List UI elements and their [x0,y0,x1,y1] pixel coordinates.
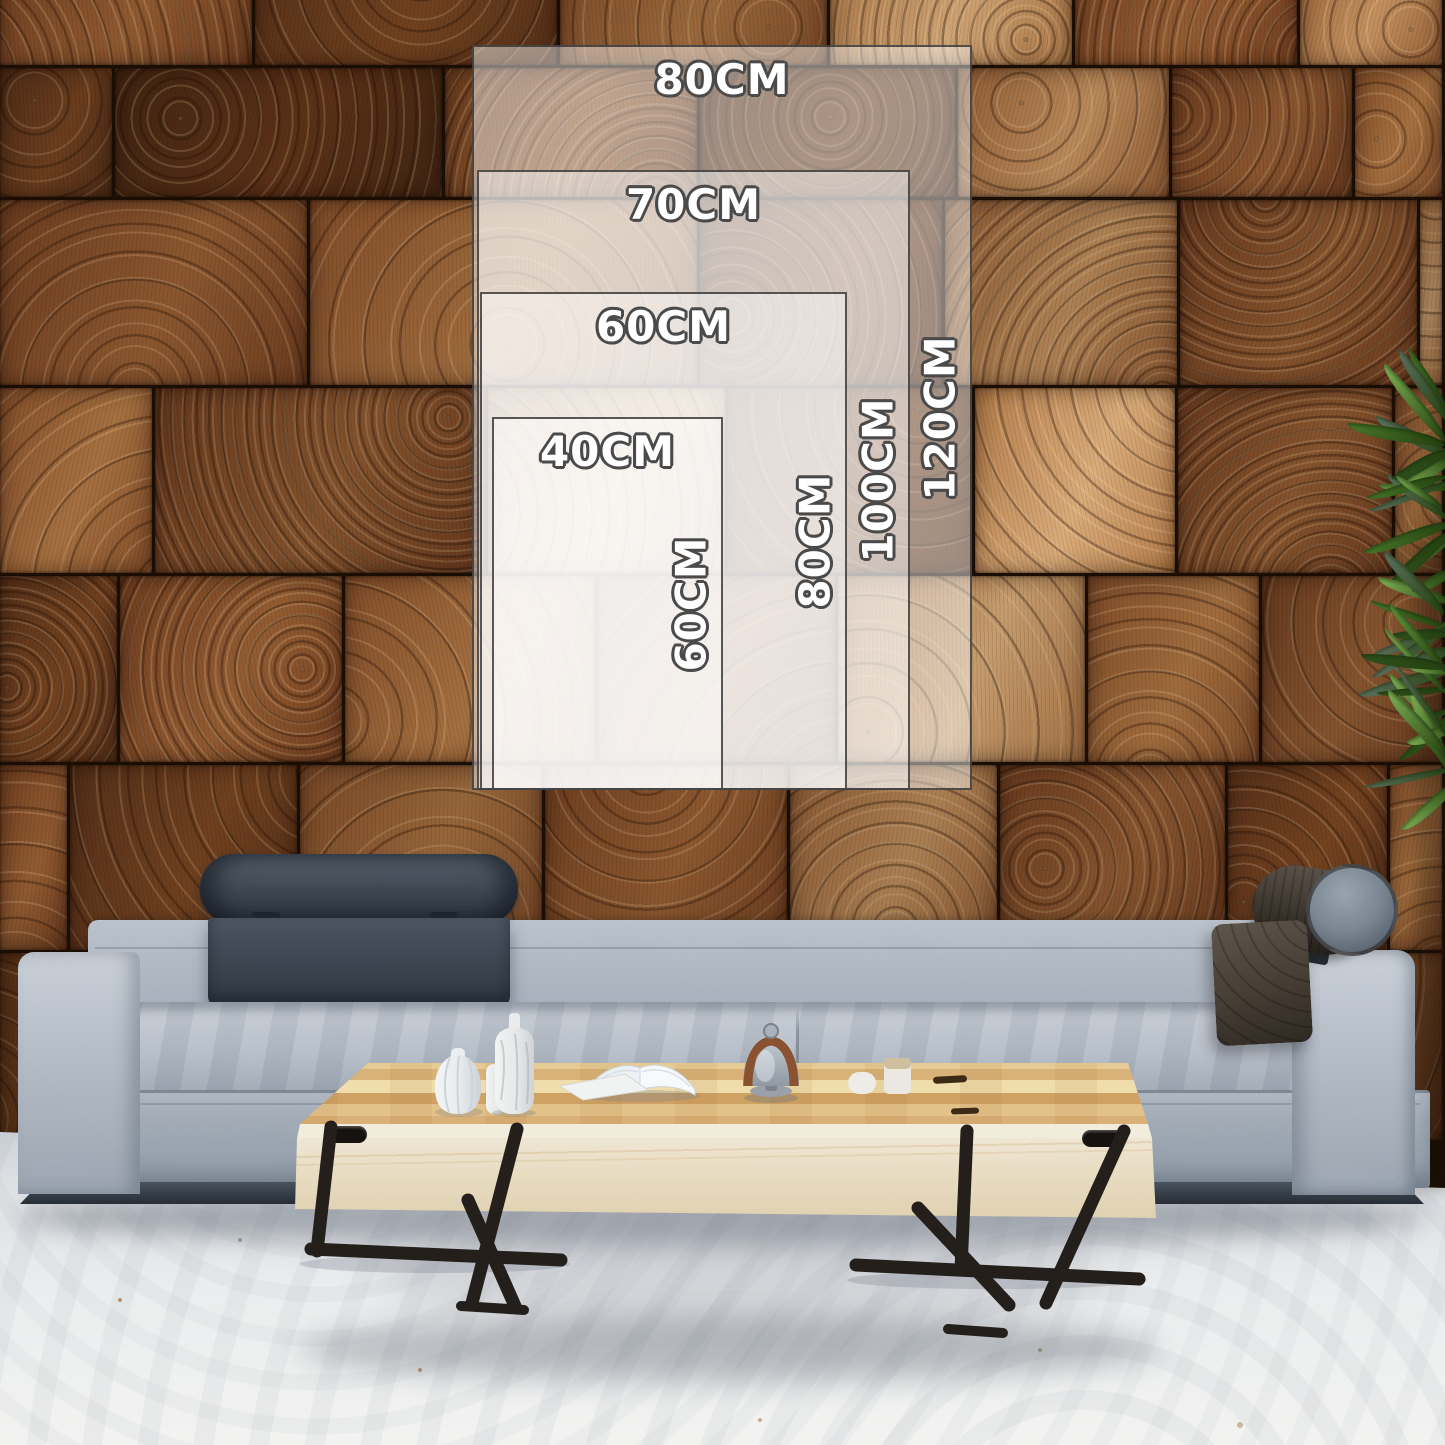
drawer-handle-left [325,1126,367,1143]
drawer-handle-right [1082,1130,1124,1147]
wood-block [1088,576,1259,762]
coffee-table [295,1060,1157,1350]
height-label-60cm: 60CM [667,536,716,671]
quilted-headrest-pillow-flap [208,918,510,1008]
wood-block [1300,0,1442,65]
width-label-40cm: 40CM [494,427,721,476]
wood-block [0,0,252,65]
wood-block [1075,0,1297,65]
width-label-60cm: 60CM [482,302,845,351]
wood-block [1420,200,1442,385]
table-knot-hole [951,1108,979,1115]
height-label-120cm: 120CM [916,335,965,500]
table-top-maple [295,1060,1157,1126]
wood-block [0,576,117,762]
espresso-leather-pillow [1211,920,1313,1047]
quilted-headrest-pillow-roll [200,854,518,924]
wood-block [958,68,1169,197]
width-label-70cm: 70CM [479,180,908,229]
living-room-size-guide-scene: 80CM 120CM 70CM 100CM 60CM 80CM 40CM 60C… [0,0,1445,1445]
wood-block [155,388,485,573]
sofa-armrest-left [18,952,140,1194]
height-label-80cm: 80CM [791,473,840,608]
wood-block [115,68,442,197]
height-label-100cm: 100CM [854,397,903,562]
wood-block [0,388,152,573]
wood-block [1180,200,1417,385]
width-label-80cm: 80CM [474,55,970,104]
wood-block [0,200,307,385]
wood-block [1172,68,1352,197]
size-rect-40x60cm: 40CM 60CM [492,417,723,790]
wood-block [1178,388,1392,573]
wood-block [0,68,112,197]
wood-block [945,200,1177,385]
wood-block [975,388,1175,573]
wood-block [120,576,342,762]
sofa-armrest-right [1292,950,1415,1195]
wood-block [1355,68,1442,197]
